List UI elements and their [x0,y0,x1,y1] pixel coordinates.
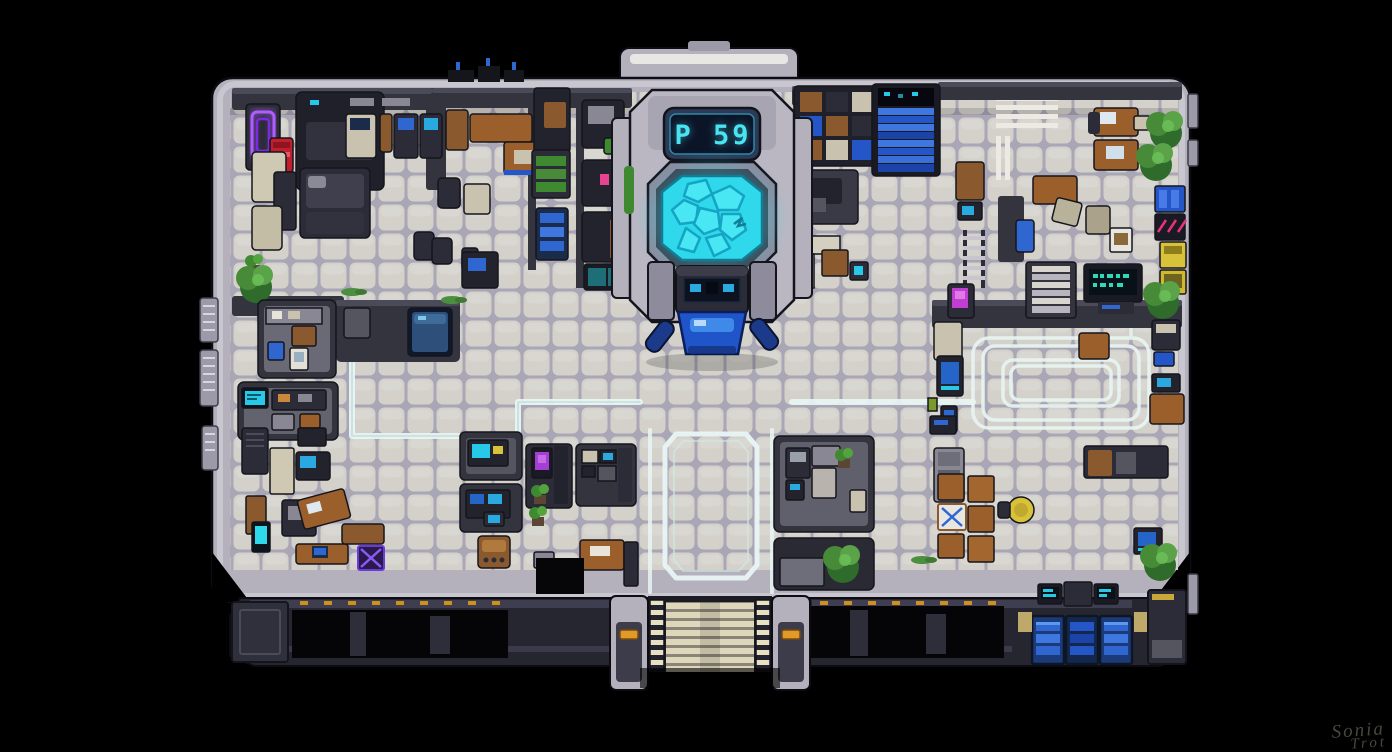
gray-machine [1116,452,1136,474]
plant-row [536,182,566,192]
framed-screen [582,466,595,477]
wood-crate [544,102,566,128]
north-entrance-greeble [688,41,730,51]
white-staircase [1026,262,1076,318]
orange-hazard-light [782,630,800,639]
beige-crate [1051,197,1082,227]
orange-hazard-light [620,630,638,639]
roof-greebles [448,58,524,82]
grass-tuft [441,296,467,304]
x-marked-desk [938,504,966,530]
poster-image [1114,233,1128,245]
blue-screen [962,206,974,215]
game-viewport[interactable]: P 59 P 59 [0,0,1392,752]
wood-desk [1079,333,1109,359]
beige-box [850,490,866,512]
server-screen [941,362,959,384]
tan-pad [1018,612,1032,632]
wall-vent [382,98,410,106]
blue-steps [878,108,934,172]
gray-box [272,414,294,430]
monitor-screen [350,118,370,130]
reactor-side-trim [648,262,674,320]
blue-locker [1066,616,1098,664]
fridge [812,468,836,498]
south-entry-stairs [610,596,810,690]
framed-screen [582,450,598,463]
reactor-pool [646,162,778,274]
wall-ladder [963,230,985,288]
graffiti-lockers [1155,186,1186,294]
blue-shelf [540,241,564,251]
chair [1088,112,1100,134]
airlock-modules-left [200,298,218,470]
wood-cabinet [956,162,984,200]
reactor-console [676,266,748,314]
blue-shelf [540,227,564,237]
wall-vine [624,166,634,214]
crate-stack [780,558,824,586]
blue-cart [1016,220,1034,252]
pink-item [600,174,609,185]
desk-paper [1106,146,1124,159]
office-chair [438,178,460,208]
vending-slot [273,142,290,148]
wood-box [300,414,320,428]
beige-cabinet [934,322,962,360]
beige-crate [1086,206,1110,234]
blue-staircase [872,84,940,176]
tan-pad [1134,612,1148,632]
artist-signature: Sonia Trot [1331,721,1387,752]
blue-bin [268,342,284,360]
keyboard [590,546,610,556]
north-entrance-highlight [630,54,788,64]
office-chair [432,238,452,264]
scanner-light [310,100,319,105]
wall-vent [350,98,374,106]
jukebox [478,536,510,568]
office-chair [414,232,434,260]
gray-machine [598,466,616,481]
holo-table [408,308,452,356]
cabinet [618,448,632,502]
blue-screen [424,118,438,130]
teal-door-left [588,268,606,286]
sub-level-void [790,606,1004,658]
yellow-vending-machine [1160,242,1186,268]
cabinet [624,542,638,586]
wood-cabinet [822,250,848,276]
wood-desk [342,524,384,544]
wall-machine [344,308,370,338]
blue-screen [1138,532,1156,546]
cyan-screen [472,444,490,458]
blue-screen [398,118,414,130]
green-bottle [928,398,937,411]
blue-locker [1100,616,1132,664]
desk-paper [1100,112,1116,124]
beige-couch [252,206,282,250]
gray-screen [588,106,614,124]
striped-rail-right [756,600,770,670]
purple-x-crate [358,546,384,570]
wall-panel [1064,582,1092,606]
bed-foot [306,212,364,234]
wood-cabinet [292,326,316,346]
blue-shelf [540,213,564,223]
plant-row [536,156,566,166]
reactor-display: P 59 P 59 [664,108,760,160]
sub-level-void [292,610,508,658]
cyan-screen [854,266,863,275]
blue-box [1154,352,1174,366]
dual-monitors [298,428,326,446]
wood-cabinet [1088,450,1112,476]
wood-desk [470,114,532,142]
wood-table [1150,394,1184,424]
reactor-shadow [646,353,778,371]
yellow-book [493,446,503,454]
blue-screen [468,258,486,271]
blue-screen [300,456,316,468]
grass-tuft [341,288,367,296]
wood-chair [380,114,392,152]
beige-crate [464,184,490,214]
magenta-screen-glow [955,291,965,299]
tall-cabinet [554,446,568,504]
glowing-blue-vents [1018,582,1186,664]
reactor-side-trim [750,262,776,320]
grass-tuft [911,556,937,564]
reactor-display-text: P 59 [674,120,751,151]
plant-row [536,169,566,179]
wood-locker [446,110,468,150]
chair [998,502,1010,518]
cyan-kiosk-screen [255,526,267,544]
map-canvas[interactable]: P 59 P 59 [0,0,1392,752]
server-light [941,386,959,390]
dark-vault-opening [536,558,584,594]
terminal-screen [1089,269,1137,295]
signature-line2: Trot [1350,736,1387,751]
beige-standing-locker [270,448,294,494]
bed-pillow [308,176,326,188]
striped-rail-left [650,600,664,670]
blue-locker [1032,616,1064,664]
